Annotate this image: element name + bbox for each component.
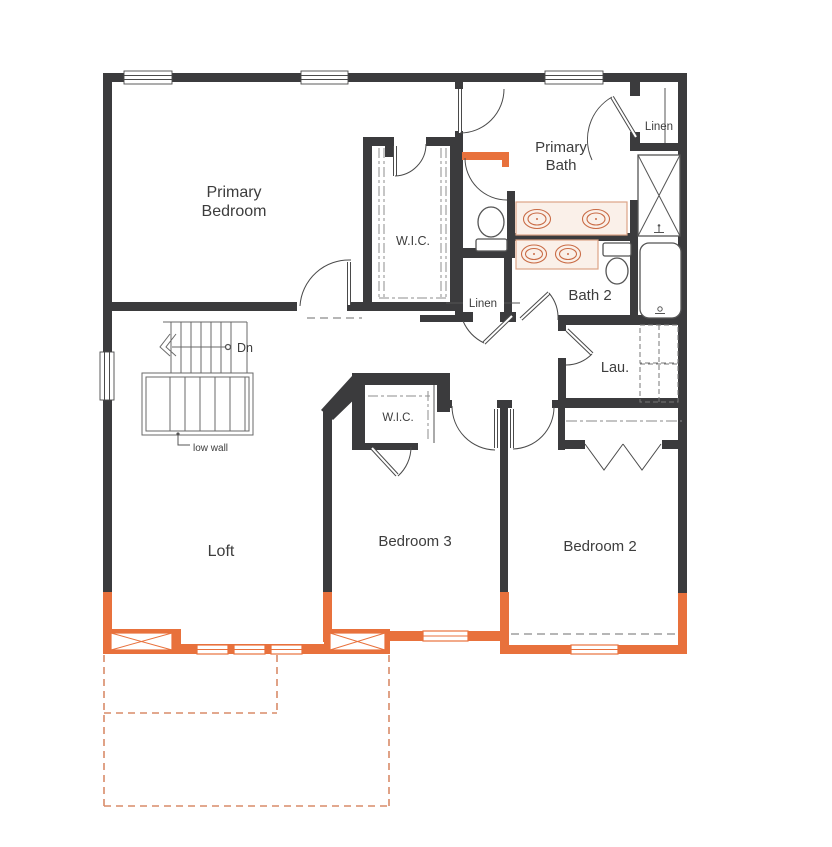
primary-bath-label2: Bath <box>546 157 577 174</box>
bedroom2-label: Bedroom 2 <box>563 538 636 555</box>
room-labels: Primary Bedroom W.I.C. Primary Bath Line… <box>193 121 673 560</box>
water-closet-door-leaf <box>462 152 509 160</box>
toilet-icon <box>603 243 631 284</box>
stair-dn-label: Dn <box>237 341 253 355</box>
window-box-left <box>111 633 172 650</box>
toilet-icon <box>476 207 507 251</box>
bifold-doors <box>585 444 661 470</box>
linen-hall-label: Linen <box>469 298 497 310</box>
loft-label: Loft <box>208 543 235 560</box>
primary-bath-label: Primary <box>535 139 587 156</box>
bedroom2-window <box>571 645 618 654</box>
bedroom3-wic-label: W.I.C. <box>382 412 413 424</box>
primary-vanity <box>516 202 627 235</box>
floor-plan-drawing: Primary Bedroom W.I.C. Primary Bath Line… <box>0 0 832 847</box>
stair-arrow-end <box>226 345 231 350</box>
bedroom3-label: Bedroom 3 <box>378 533 451 550</box>
loft-windows <box>197 645 302 654</box>
primary-wic-label: W.I.C. <box>396 234 430 248</box>
bedroom3-window <box>423 631 468 641</box>
linen-upper-label: Linen <box>645 121 673 133</box>
low-wall-label: low wall <box>193 443 228 454</box>
washer-dryer-icon <box>640 325 678 402</box>
laundry-label: Lau. <box>601 360 629 376</box>
primary-bedroom-label2: Bedroom <box>202 203 267 220</box>
primary-bedroom-label: Primary <box>206 184 261 201</box>
bath2-vanity <box>516 240 598 269</box>
bathtub-icon <box>640 243 681 318</box>
floor-plan-canvas: Primary Bedroom W.I.C. Primary Bath Line… <box>0 0 832 847</box>
bath2-label: Bath 2 <box>568 287 611 304</box>
optional-area-dashed-outline <box>104 655 389 806</box>
shower-icon <box>638 155 680 236</box>
window-box-right <box>330 633 385 650</box>
